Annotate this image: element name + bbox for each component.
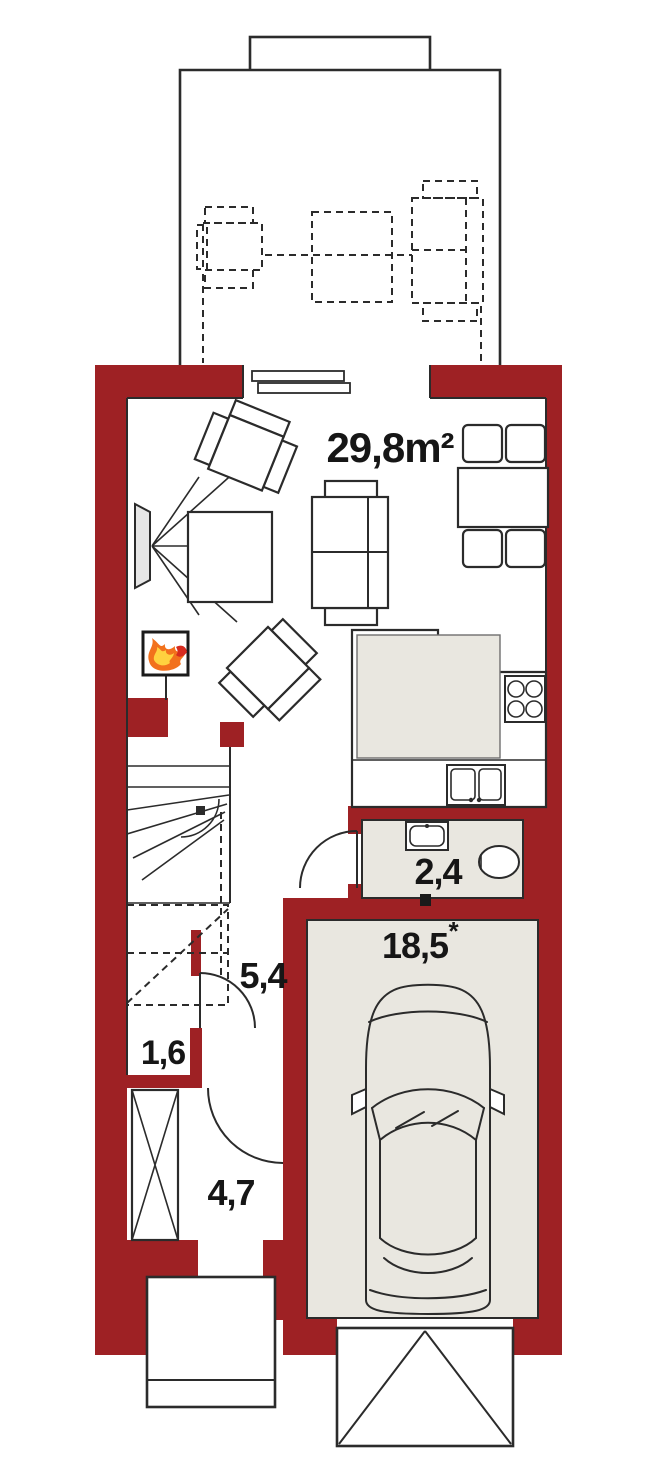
wall-segment xyxy=(190,1028,202,1077)
stairs-dashed-outline xyxy=(127,905,228,1005)
dining-table xyxy=(458,468,548,527)
garage-area-label: 18,5 xyxy=(382,925,449,966)
stove-burners-icon xyxy=(505,676,545,722)
porch xyxy=(147,1277,275,1407)
toilet-icon xyxy=(479,846,519,878)
entry-area-label: 4,7 xyxy=(207,1172,254,1213)
wc-area-label: 2,4 xyxy=(414,851,462,892)
floor-plan-page: 29,8m² xyxy=(0,0,660,1482)
wc-door-arc xyxy=(300,831,357,888)
storage-area-label: 1,6 xyxy=(141,1034,185,1072)
staircase-icon xyxy=(127,747,230,1005)
kitchen xyxy=(352,630,546,807)
terrace-step xyxy=(250,37,430,72)
washbasin-icon xyxy=(406,822,448,850)
sliding-door-icon xyxy=(252,371,350,393)
kitchen-worktop xyxy=(357,635,500,758)
garage-floor xyxy=(307,920,538,1318)
garage-wall-tick xyxy=(420,894,431,906)
floor-plan-canvas: 29,8m² xyxy=(0,0,660,1482)
entry-door-arc xyxy=(208,1088,283,1163)
entry-door-opening xyxy=(198,1238,263,1279)
fireplace-icon xyxy=(143,632,188,700)
dining-chair xyxy=(463,425,502,462)
kitchen-sink-icon xyxy=(447,765,505,805)
dining-chair xyxy=(506,425,545,462)
driveway xyxy=(337,1328,513,1446)
porch-steps xyxy=(147,1277,275,1407)
chimney-wall-stub xyxy=(127,698,168,737)
dining-chair xyxy=(506,530,545,567)
wall-segment xyxy=(430,365,562,398)
wc-room: 2,4 xyxy=(300,820,523,898)
terrace xyxy=(180,37,500,365)
wall-segment xyxy=(127,1240,198,1277)
hall-area-label: 5,4 xyxy=(239,955,287,996)
wall-segment xyxy=(283,1318,337,1355)
dining-chair xyxy=(463,530,502,567)
wall-segment xyxy=(95,365,243,398)
garage: 18,5 * xyxy=(307,894,538,1318)
driveway-apron xyxy=(337,1328,513,1446)
sofa-icon xyxy=(312,481,388,625)
wall-segment xyxy=(95,365,127,1240)
wall-segment xyxy=(538,898,562,1318)
wall-segment xyxy=(513,1318,562,1355)
armchair-icon xyxy=(216,616,332,732)
wall-segment xyxy=(546,365,562,806)
stair-pillar xyxy=(220,722,244,747)
wall-segment xyxy=(127,1075,202,1088)
wall-segment xyxy=(348,884,362,898)
hall: 5,4 xyxy=(200,955,288,1163)
living-room-area-label: 29,8m² xyxy=(326,424,454,471)
wardrobe-x-icon xyxy=(132,1090,178,1240)
armchair-icon xyxy=(193,394,304,496)
storage-room: 1,6 xyxy=(141,1034,185,1072)
dining-set xyxy=(458,425,548,567)
coffee-table xyxy=(188,512,272,602)
